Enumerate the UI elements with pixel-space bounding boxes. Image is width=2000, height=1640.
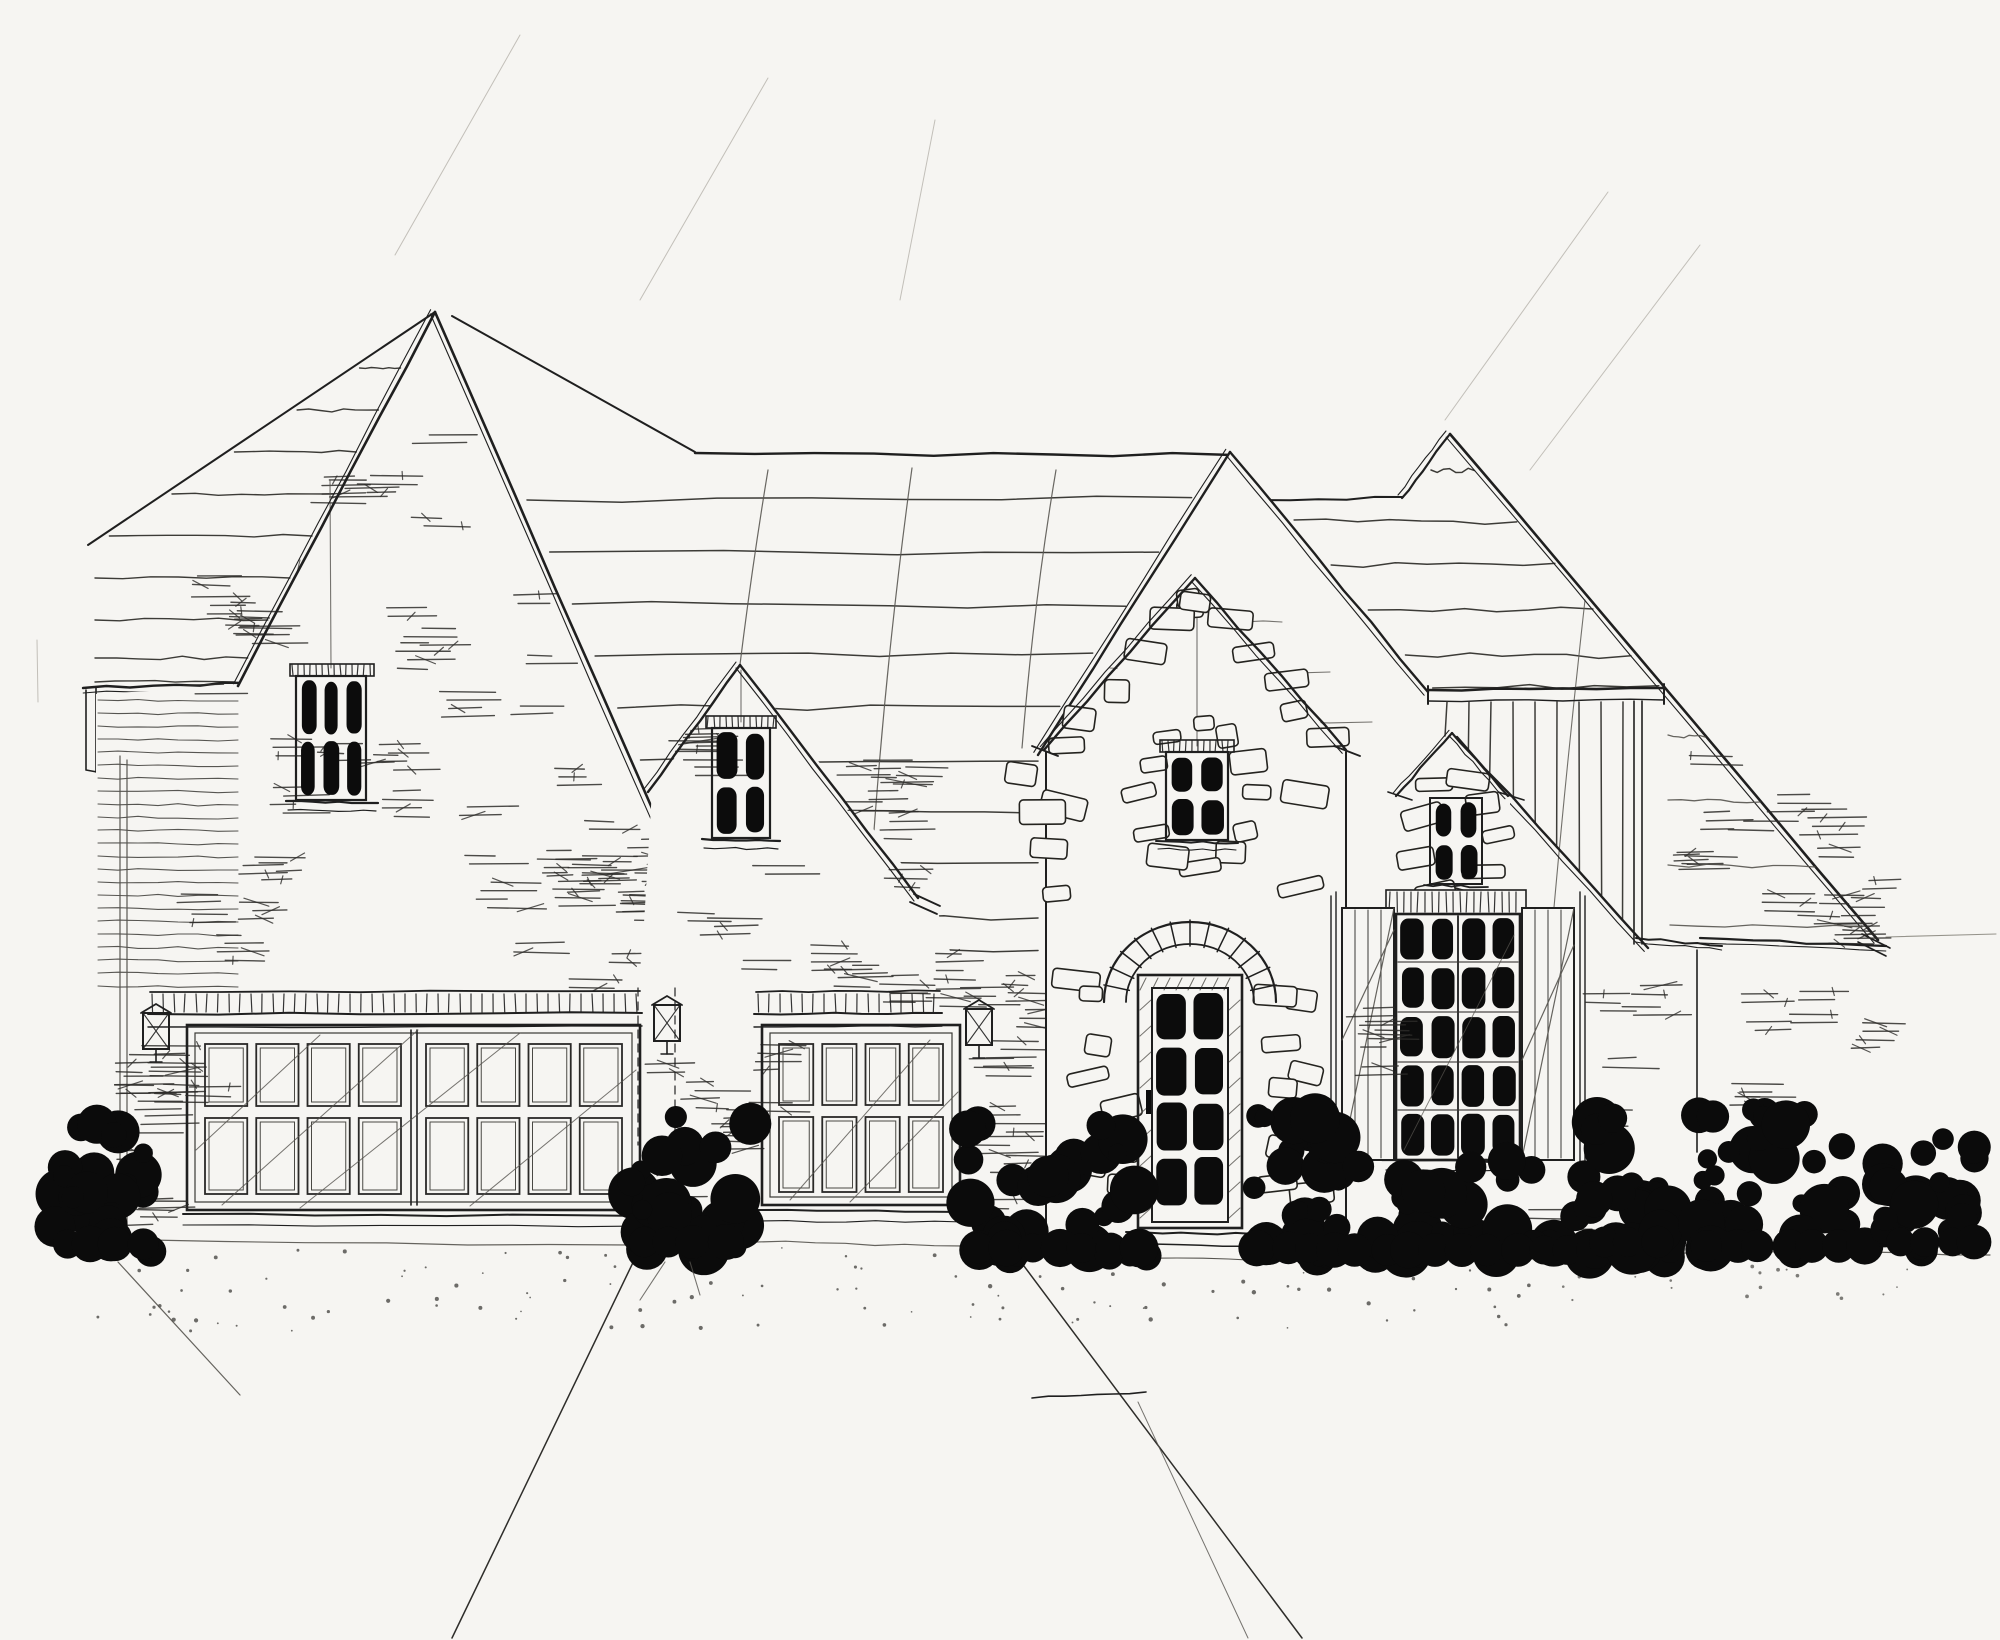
sketch-page	[0, 0, 2000, 1640]
elevation-sketch	[0, 0, 2000, 1640]
bay-shutter-right	[1522, 908, 1574, 1160]
